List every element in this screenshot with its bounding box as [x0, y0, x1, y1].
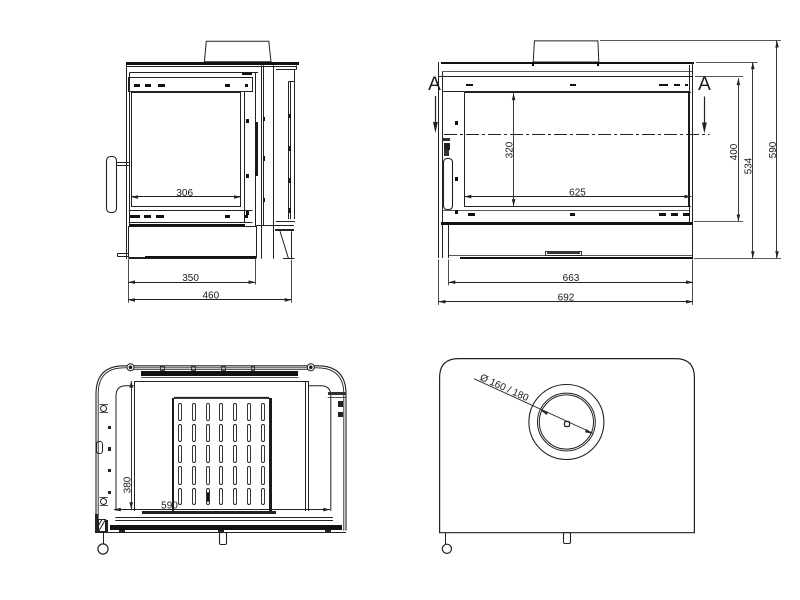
svg-text:590: 590: [768, 141, 779, 158]
svg-text:Ø 160 / 180: Ø 160 / 180: [478, 372, 530, 404]
svg-text:306: 306: [176, 188, 193, 199]
svg-text:A: A: [698, 74, 711, 95]
svg-text:380: 380: [123, 476, 134, 493]
svg-text:460: 460: [202, 291, 219, 302]
svg-text:A: A: [428, 74, 441, 95]
